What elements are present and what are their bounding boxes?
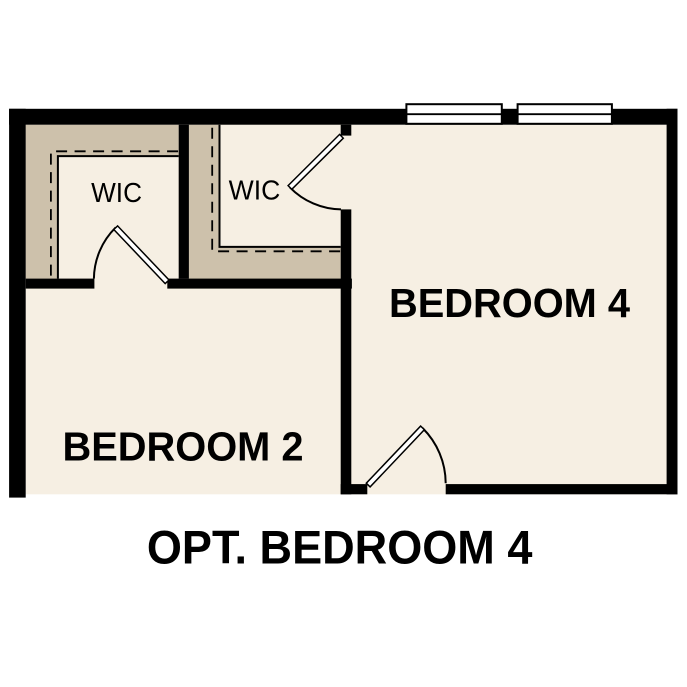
svg-text:OPT. BEDROOM 4: OPT. BEDROOM 4 (147, 520, 533, 573)
svg-text:WIC: WIC (91, 177, 142, 208)
svg-text:BEDROOM 2: BEDROOM 2 (63, 423, 304, 469)
svg-text:BEDROOM 4: BEDROOM 4 (389, 280, 630, 326)
svg-text:WIC: WIC (229, 175, 281, 206)
